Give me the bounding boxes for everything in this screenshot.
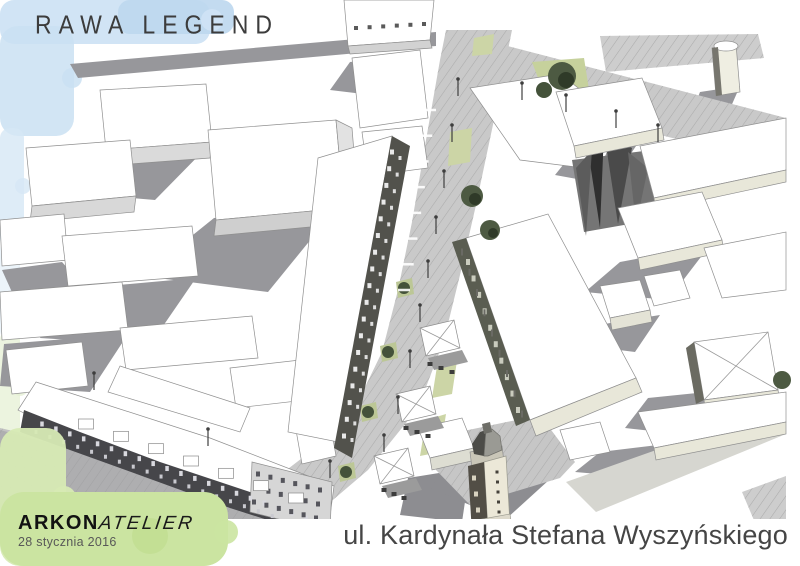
streetrow-windows-b [373,305,376,309]
townhouse-windows-a [96,441,100,446]
streetrow-windows-b [396,173,399,177]
tower-left-windows [472,476,476,481]
streetrow-windows-b [365,355,368,359]
townhouse-windows-a [138,456,142,461]
streetrow-windows-a [373,250,377,255]
tower-left-windows [474,492,478,497]
streetrow-windows-a [365,300,369,305]
tree-east-2-core [488,228,498,238]
presentation-slide: RAWA LEGEND ARKONATELIER 28 stycznia 201… [0,0,800,566]
townhouse-windows-a [82,436,86,441]
arcade-posts [491,330,493,337]
east-facade-windows [466,259,470,265]
end-facade-row-3 [264,503,268,508]
end-facade-row-2 [279,492,283,497]
streetrow-windows-b [362,372,365,376]
cafe-tables-2 [404,426,409,430]
rawa-legend-logo: RAWA LEGEND [35,10,279,40]
arcade-posts [484,309,486,316]
tree-east-1-core [469,193,481,205]
tower-left-windows [476,508,480,513]
cafe-tables-3 [392,492,397,496]
streetrow-windows-a [370,266,374,271]
east-facade-windows [499,358,503,364]
end-facade-row-1 [256,472,260,477]
parking-dashes [424,109,436,112]
streetrow-windows-b [379,272,382,276]
streetrow-windows-a [384,183,388,188]
dormers [219,468,234,478]
streetrow-windows-b [387,222,390,226]
townhouse-windows-a [235,491,239,496]
streetrow-windows-a [356,350,360,355]
end-facade-row-1 [268,475,272,480]
end-facade-row-1 [293,481,297,486]
tower-round-windows [497,501,500,504]
lamp-head [426,259,430,263]
townhouse-windows-b [118,460,121,464]
arcade-posts [461,249,463,256]
townhouse-windows-b [257,509,260,513]
townhouse-windows-b [132,465,135,469]
streetrow-windows-a [342,434,346,439]
townhouse-windows-a [151,461,155,466]
parking-dashes [417,160,429,163]
tree-fork-big-core [558,72,574,88]
arcade-posts [469,269,471,276]
arcade-posts [506,370,508,377]
top-strip-windows [368,25,372,29]
streetrow-windows-b [353,421,356,425]
end-facade-row-3 [277,506,281,511]
bldg-bar-2 [62,226,198,286]
cafe-tables-2 [426,434,431,438]
lamp-head [206,427,210,431]
cafe-tables-1 [428,362,433,366]
cafe-tables-1 [439,366,444,370]
streetrow-windows-b [359,388,362,392]
townhouse-windows-a [165,466,169,471]
cafe-tables-3 [382,488,387,492]
court-top-right-hatch [600,34,764,72]
top-strip-windows [381,24,385,28]
townhouse-windows-b [146,470,149,474]
puzzle-blue-knob-3 [15,178,31,194]
atelier-logo-script: ATELIER [97,514,195,534]
east-facade-windows [472,275,476,281]
tree-planter-4 [340,466,352,478]
streetrow-windows-a [362,317,366,322]
dormers [149,444,164,454]
cafe-tables-1 [450,370,455,374]
townhouse-windows-a [68,431,72,436]
tower-round-windows [498,511,501,514]
lamp-head [450,123,454,127]
date-label: 28 stycznia 2016 [18,536,194,549]
parking-dashes [420,134,432,137]
parking-dashes [405,237,417,240]
streetrow-windows-b [356,405,359,409]
end-facade-row-1 [281,478,285,483]
streetrow-windows-a [350,383,354,388]
townhouse-windows-b [90,450,93,454]
streetrow-windows-a [345,417,349,422]
townhouse-windows-a [193,476,197,481]
streetrow-windows-b [382,256,385,260]
streetrow-windows-a [348,400,352,405]
arcade-posts [499,350,501,357]
townhouse-windows-a [110,446,114,451]
east-facade-windows [516,407,520,413]
dormers [184,456,199,466]
streetrow-windows-b [367,338,370,342]
townhouse-windows-b [229,499,232,503]
parking-dashes [413,186,425,189]
streetrow-windows-a [359,333,363,338]
lamp-head [328,459,332,463]
street-title: ul. Kardynała Stefana Wyszyńskiego [343,520,788,551]
townhouse-windows-a [249,496,253,501]
streetrow-windows-a [390,150,394,155]
end-facade-row-3 [289,509,293,514]
lamp-head [434,215,438,219]
cafe-tables-3 [402,496,407,500]
streetrow-windows-a [367,283,371,288]
tree-fork-2 [536,82,552,98]
lamp-head [520,81,524,85]
court-bottom-right-hatch [742,476,786,525]
streetrow-windows-b [370,322,373,326]
bldg-a-roof [100,84,212,150]
lamp-head [564,93,568,97]
dormers [114,431,129,441]
end-facade-row-2 [316,502,320,507]
dormers [254,481,269,491]
tree-planter-3 [362,406,374,418]
lamp-head [456,77,460,81]
streetrow-windows-b [376,289,379,293]
townhouse-windows-a [207,481,211,486]
tower-round-windows [496,471,499,474]
townhouse-windows-a [124,451,128,456]
bldg-bar-1 [0,214,68,266]
tree-planter-1 [398,282,410,294]
townhouse-windows-b [173,479,176,483]
tree-planter-2 [382,346,394,358]
tower-round-windows [496,481,499,484]
streetrow-windows-a [353,367,357,372]
top-strip-windows [395,24,399,28]
arcade-posts [521,411,523,418]
arkon-logo-bold: ARKON [18,512,99,534]
site-plan-3d-render [0,0,800,566]
townhouse-windows-b [243,504,246,508]
streetrow-windows-b [390,206,393,210]
end-facade-row-1 [306,484,310,489]
townhouse-windows-a [179,471,183,476]
townhouse-windows-b [76,445,79,449]
parking-dashes [398,289,410,292]
streetrow-windows-b [399,156,402,160]
arcade-posts [514,390,516,397]
puzzle-green-knob-3 [214,520,238,544]
bldg-west-small-1 [352,50,428,128]
bldg-top-strip-roof [344,0,434,46]
end-facade-row-2 [304,498,308,503]
end-facade-row-3 [302,512,306,517]
city-model-layer [0,0,791,548]
dormers [79,419,94,429]
townhouse-windows-b [187,484,190,488]
top-strip-windows [408,23,412,27]
townhouse-windows-b [160,475,163,479]
dormers [289,493,304,503]
streetrow-windows-b [351,438,354,442]
streetrow-windows-a [387,166,391,171]
parking-dashes [402,263,414,266]
streetrow-windows-a [382,200,386,205]
top-strip-windows [354,26,358,30]
lamp-head [382,433,386,437]
lamp-head [614,109,618,113]
bldg-b-roof [26,140,136,206]
tower-round-windows [497,491,500,494]
arcade-posts [476,289,478,296]
lamp-head [418,303,422,307]
bldg-bar-3 [0,282,128,340]
parking-dashes [409,212,421,215]
end-facade-row-3 [252,500,256,505]
arkon-atelier-logo: ARKONATELIER 28 stycznia 2016 [18,513,194,549]
streetrow-windows-a [376,233,380,238]
lamp-head [408,349,412,353]
lamp-head [396,395,400,399]
lamp-head [656,123,660,127]
streetrow-windows-b [393,189,396,193]
top-strip-windows [422,22,426,26]
townhouse-windows-a [221,486,225,491]
tree-right-edge [773,371,791,389]
east-facade-windows [494,341,498,347]
townhouse-windows-b [271,514,274,518]
streetrow-windows-a [379,216,383,221]
end-facade-row-1 [318,488,322,493]
townhouse-windows-a [40,422,44,427]
lamp-head [442,169,446,173]
townhouse-windows-b [104,455,107,459]
lamp-head [92,371,96,375]
cafe-tables-2 [415,430,420,434]
streetrow-windows-b [384,239,387,243]
